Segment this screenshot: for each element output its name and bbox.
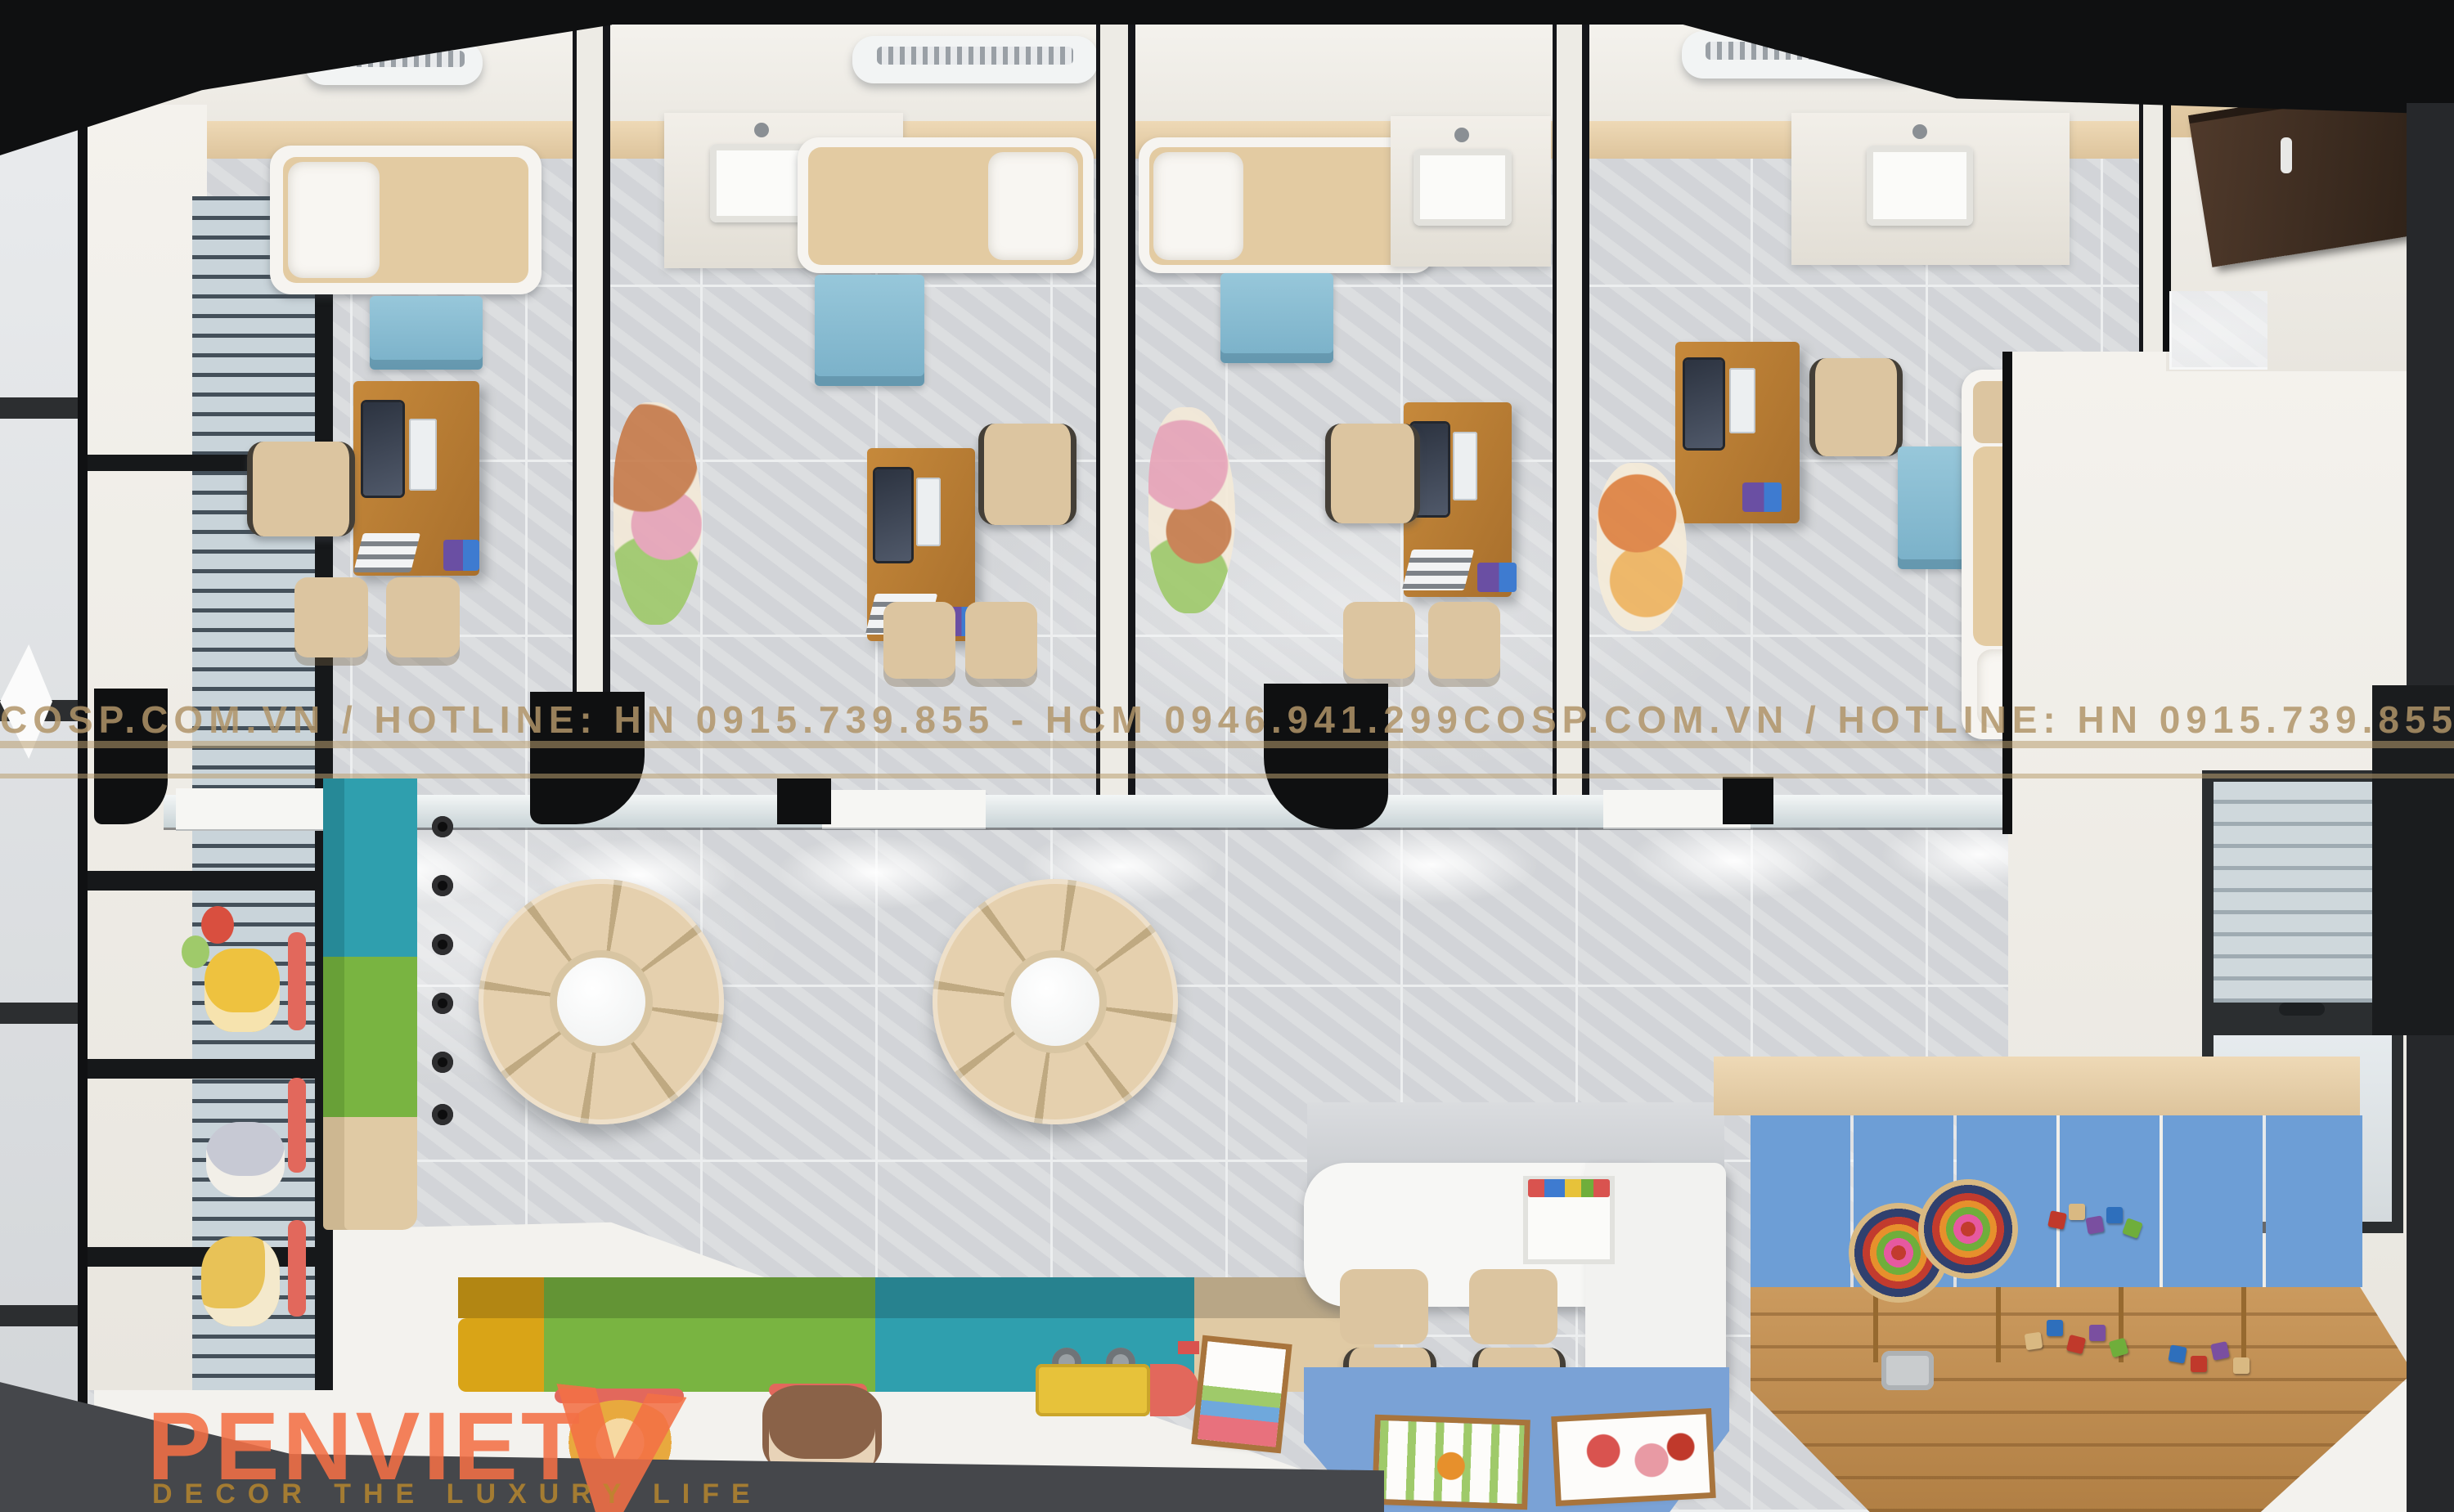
room2-keyboard bbox=[916, 478, 941, 546]
render-canvas: WC bbox=[0, 0, 2454, 1512]
room2-faucet bbox=[754, 123, 769, 137]
penviet-logo-tagline: DECOR THE LUXURY LIFE bbox=[152, 1478, 762, 1510]
room1-document-rack bbox=[353, 533, 420, 572]
frame-top-middle bbox=[612, 0, 1683, 25]
room3-faucet bbox=[1454, 128, 1469, 142]
window-frame-crossbar bbox=[88, 1059, 325, 1079]
reception-tray-pens bbox=[1528, 1179, 1610, 1197]
room1-glove-box bbox=[443, 540, 479, 571]
floor-decal-train-body bbox=[1036, 1364, 1150, 1416]
room2-monitor bbox=[875, 469, 911, 561]
rainbow-board bbox=[1198, 1341, 1286, 1447]
room3-document-rack bbox=[1402, 550, 1474, 590]
room1-monitor bbox=[363, 402, 402, 496]
room3-sink bbox=[1414, 149, 1512, 226]
bench-dot bbox=[432, 875, 453, 896]
bench-bottom-seat-green bbox=[544, 1318, 875, 1392]
room3-stool bbox=[1343, 602, 1415, 679]
bench-dot bbox=[432, 993, 453, 1014]
blocks-cluster bbox=[2049, 1204, 2147, 1253]
watermark-line bbox=[0, 741, 2454, 748]
room2-stool bbox=[965, 602, 1037, 679]
reception-chair-back bbox=[1340, 1269, 1428, 1344]
room3-doctor-chair bbox=[1325, 424, 1420, 523]
glass-door-frame bbox=[822, 790, 986, 828]
room1-doctor-chair bbox=[247, 442, 355, 536]
watermark-text: Cosp.com.vn / Hotline: HN 0915.739.855 -… bbox=[0, 698, 1463, 742]
hallway-wall-edge bbox=[2002, 352, 2012, 834]
room1-keyboard bbox=[409, 419, 437, 491]
bench-bottom-seat-yellow bbox=[458, 1318, 544, 1392]
room4-monitor bbox=[1685, 360, 1723, 448]
mat-poster-anatomy bbox=[1557, 1414, 1710, 1500]
reception-chair-back bbox=[1469, 1269, 1557, 1344]
window-red-accent bbox=[288, 1078, 306, 1173]
balloon-decal-red bbox=[201, 906, 234, 944]
entry-door-handle bbox=[2281, 137, 2292, 173]
playpit-beige-trim bbox=[1714, 1057, 2360, 1115]
room2-ac-unit bbox=[852, 36, 1098, 83]
room4-keyboard bbox=[1729, 368, 1755, 433]
floor-decal-train-nose bbox=[1150, 1364, 1199, 1416]
entry-floor-tile bbox=[2169, 291, 2267, 370]
facade-glass-strip bbox=[0, 96, 78, 1512]
penviet-logo: PENVIET DECOR THE LUXURY LIFE bbox=[147, 1390, 883, 1512]
facade-black-line bbox=[78, 96, 88, 1512]
deck-divider bbox=[1996, 1287, 2001, 1362]
right-window-handle bbox=[2279, 1003, 2325, 1016]
room3-keyboard bbox=[1453, 432, 1477, 500]
facade-mullion bbox=[0, 1003, 78, 1024]
room2-stool bbox=[883, 602, 955, 679]
room4-faucet bbox=[1912, 124, 1927, 139]
watermark-line bbox=[0, 774, 2454, 778]
bench-dot bbox=[432, 934, 453, 955]
ring-stack-toy bbox=[1918, 1179, 2018, 1279]
room1-blue-cabinet bbox=[370, 296, 483, 370]
wall-post-black bbox=[1723, 777, 1773, 824]
right-window-blinds bbox=[2214, 782, 2392, 1003]
donut-sofa-hole bbox=[557, 958, 645, 1046]
room2-doctor-chair bbox=[978, 424, 1076, 525]
room4-doctor-chair bbox=[1809, 358, 1903, 456]
glass-partition-band bbox=[164, 795, 2143, 828]
bench-left-green bbox=[323, 957, 417, 1117]
watermark-band: Cosp.com.vn / Hotline: HN 0915.739.855 -… bbox=[0, 691, 2454, 748]
bench-bottom-back-green bbox=[544, 1277, 875, 1318]
light-glow bbox=[777, 836, 973, 909]
bench-bottom-back-yellow bbox=[458, 1277, 544, 1318]
room1-pillow bbox=[288, 162, 380, 278]
bench-left-tan bbox=[323, 1117, 417, 1230]
gray-puzzle-toy bbox=[1881, 1351, 1934, 1390]
hippo-decal bbox=[206, 1122, 285, 1197]
room2-pillow bbox=[988, 152, 1078, 260]
room1-stool bbox=[386, 577, 460, 657]
bench-dot bbox=[432, 1052, 453, 1073]
watermark-text: Cosp.com.vn / Hotline: HN 0915.739.855 -… bbox=[1463, 698, 2454, 742]
window-red-accent bbox=[288, 1220, 306, 1317]
room1-stool bbox=[294, 577, 368, 657]
room3-stool bbox=[1428, 602, 1500, 679]
balloon-decal-green bbox=[182, 935, 209, 968]
giraffe-decal bbox=[201, 1236, 280, 1326]
wall-post-black bbox=[777, 778, 831, 824]
room3-pillow bbox=[1153, 152, 1243, 260]
floor-decal-train-flag bbox=[1178, 1341, 1199, 1354]
deck-divider bbox=[1873, 1287, 1878, 1362]
light-glow bbox=[1325, 826, 1538, 904]
bench-left-teal bbox=[323, 778, 417, 957]
mat-poster-food bbox=[1378, 1420, 1524, 1504]
bench-dot bbox=[432, 816, 453, 837]
window-red-accent bbox=[288, 932, 306, 1030]
room3-step-cabinet bbox=[1220, 273, 1333, 363]
blocks-cluster bbox=[2169, 1339, 2276, 1389]
playpit-blue-wall bbox=[1751, 1115, 2362, 1287]
room4-sink bbox=[1867, 146, 1973, 226]
room4-blue-cabinet bbox=[1898, 446, 1966, 569]
bench-bottom-back-teal bbox=[875, 1277, 1194, 1318]
room3-glove-box bbox=[1477, 563, 1517, 592]
facade-mullion bbox=[0, 397, 78, 419]
blocks-cluster bbox=[2022, 1318, 2145, 1375]
room2-step-cabinet bbox=[815, 275, 924, 386]
tiger-decal bbox=[204, 949, 280, 1032]
donut-sofa-hole bbox=[1011, 958, 1099, 1046]
room4-glove-box bbox=[1742, 482, 1782, 512]
light-glow bbox=[1628, 822, 1840, 900]
bench-dot bbox=[432, 1104, 453, 1125]
window-frame-crossbar bbox=[88, 871, 325, 891]
facade-mullion bbox=[0, 1305, 78, 1326]
